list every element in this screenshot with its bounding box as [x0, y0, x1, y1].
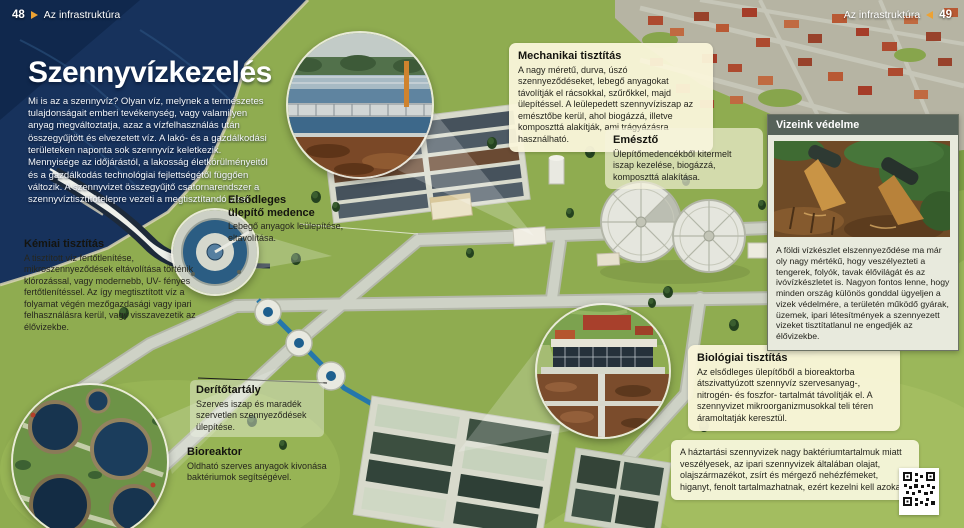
callout-kemiai: Kémiai tisztítás A tisztított víz fertőt…	[24, 238, 202, 333]
sidebar-body: A földi vízkészlet elszennyeződése ma má…	[768, 243, 958, 350]
callout-bioreaktor: Bioreaktor Oldható szerves anyagok kivon…	[187, 446, 337, 484]
sidebar-vizeink-vedelme: Vizeink védelme A földi vízkészlet elsze…	[767, 114, 959, 351]
note-haztartasi-body: A háztartási szennyvizek nagy baktériumt…	[680, 447, 910, 493]
callout-emeszto: Emésztő Ülepítőmedencékből kitermelt isz…	[605, 128, 763, 189]
arrow-left-icon	[926, 11, 933, 19]
qr-code	[899, 468, 939, 515]
callout-emeszto-title: Emésztő	[613, 134, 755, 147]
intro-paragraph: Mi is az a szennyvíz? Olyan víz, melynek…	[28, 96, 268, 207]
textbook-spread: 48 Az infrastruktúra Az infrastruktúra 4…	[0, 0, 964, 528]
polluted-water-outfall-photo	[774, 141, 950, 237]
arrow-right-icon	[31, 11, 38, 19]
section-breadcrumb-right: Az infrastruktúra	[844, 9, 920, 21]
page-header-left: 48 Az infrastruktúra	[12, 9, 120, 21]
page-title: Szennyvízkezelés	[28, 56, 272, 90]
callout-biologiai-body: Az elsődleges ülepítőből a bioreaktorba …	[697, 367, 891, 425]
callout-emeszto-body: Ülepítőmedencékből kitermelt iszap kezel…	[613, 149, 755, 184]
photo-inset-plant-aerial	[535, 303, 671, 439]
callout-deritotartaly-title: Derítőtartály	[196, 384, 318, 397]
sidebar-title: Vizeink védelme	[768, 115, 958, 135]
photo-inset-round-tanks-aerial	[11, 383, 169, 528]
page-header-right: Az infrastruktúra 49	[844, 9, 952, 21]
callout-biologiai-title: Biológiai tisztítás	[697, 352, 891, 365]
callout-bioreaktor-body: Oldható szerves anyagok kivonása baktéri…	[187, 461, 337, 484]
photo-inset-sedimentation-basins	[286, 31, 434, 179]
note-haztartasi: A háztartási szennyvizek nagy baktériumt…	[671, 440, 919, 500]
qr-code-pattern	[902, 471, 936, 507]
page-right-number: 49	[939, 9, 952, 21]
callout-mechanikai-title: Mechanikai tisztítás	[518, 50, 704, 63]
callout-elsodleges: Elsődleges ülepítő medence Lebegő anyago…	[228, 194, 360, 244]
callout-deritotartaly: Derítőtartály Szerves iszap és maradék s…	[190, 380, 324, 437]
callout-kemiai-title: Kémiai tisztítás	[24, 238, 202, 251]
callout-kemiai-body: A tisztított víz fertőtlenítése, mikrosz…	[24, 253, 202, 334]
callout-deritotartaly-body: Szerves iszap és maradék szervetlen szen…	[196, 399, 318, 434]
callout-biologiai: Biológiai tisztítás Az elsődleges ülepít…	[688, 345, 900, 431]
callout-elsodleges-title: Elsődleges ülepítő medence	[228, 194, 318, 219]
callout-elsodleges-body: Lebegő anyagok leülepítése, eltávolítása…	[228, 221, 360, 244]
page-left-number: 48	[12, 9, 25, 21]
callout-bioreaktor-title: Bioreaktor	[187, 446, 337, 459]
section-breadcrumb-left: Az infrastruktúra	[44, 9, 120, 21]
